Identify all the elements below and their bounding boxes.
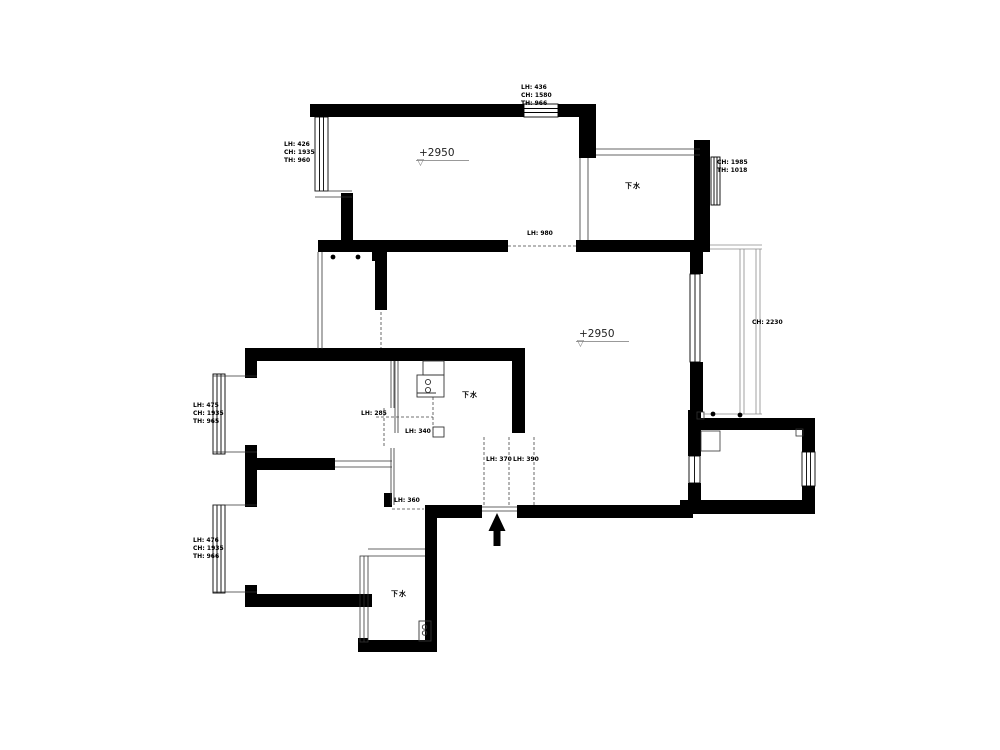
dashed-openings [376,246,576,509]
drain-label-kitchen: 下水 [462,390,478,400]
wall [245,458,335,470]
floor-plan-drawing [0,0,1000,750]
spec-line: CH: 1935 [193,410,224,418]
window-hall-right [690,274,700,362]
window-top-left [315,117,328,191]
level-triangle-icon: ▽ [417,159,424,168]
dim-label-door-e: LH: 360 [394,497,420,504]
wall [245,594,372,607]
wall [512,353,525,433]
spec-line: LH: 426 [284,141,315,149]
drain-label-bottom-room: 下水 [391,589,407,599]
wall [576,240,710,252]
walls [245,104,815,652]
wall [362,640,437,652]
wall [318,240,508,252]
level-marker-hall: +2950 ▽ [576,328,629,342]
spec-line: CH: 1935 [193,545,224,553]
wall [558,104,596,117]
wall [680,500,815,514]
spec-line: LH: 475 [193,402,224,410]
plan-canvas: LH: 436 CH: 1580 TH: 966 LH: 426 CH: 193… [0,0,1000,750]
wall [375,252,387,310]
window-right-room-west [689,456,700,483]
level-marker-living: +2950 ▽ [416,147,469,161]
dim-label-opening-top: LH: 980 [527,230,553,237]
door-stop-marker [796,429,803,436]
spec-line: TH: 966 [521,100,552,108]
wall [802,418,815,452]
wall [694,140,710,252]
wall [700,418,812,430]
spec-line: CH: 1985 [717,159,748,167]
wall [245,445,257,507]
dim-label-door-a: LH: 285 [361,410,387,417]
wall [310,104,524,117]
entry-arrow [489,513,506,546]
window-spec-top-right: CH: 1985 TH: 1018 [717,159,748,175]
spec-line: CH: 1935 [284,149,315,157]
corridor-lines [703,245,762,414]
kitchen-counter [417,361,444,437]
window-right-room-east [802,452,815,486]
dim-label-door-b: LH: 340 [405,428,431,435]
wall [358,638,368,652]
dim-label-door-d: LH: 390 [513,456,539,463]
dim-label-door-c: LH: 370 [486,456,512,463]
dim-label-right-corridor: CH: 2230 [752,319,783,326]
wall [690,362,703,412]
wall [690,252,703,274]
wall [517,505,693,518]
spec-line: TH: 965 [193,418,224,426]
wall [437,505,482,518]
spec-line: TH: 966 [193,553,224,561]
window-spec-mid-left: LH: 475 CH: 1935 TH: 965 [193,402,224,426]
spec-line: CH: 1580 [521,92,552,100]
spec-line: TH: 960 [284,157,315,165]
wall [579,117,596,158]
door-leaf [701,431,720,451]
spec-line: LH: 476 [193,537,224,545]
spec-line: TH: 1018 [717,167,748,175]
wall [245,361,257,378]
spec-line: LH: 436 [521,84,552,92]
wall [341,193,353,240]
window-spec-bottom-left: LH: 476 CH: 1935 TH: 966 [193,537,224,561]
drain-label-balcony: 下水 [625,181,641,191]
window-spec-top-center: LH: 436 CH: 1580 TH: 966 [521,84,552,108]
wall [245,348,525,361]
point-markers [331,255,743,418]
window-spec-top-left: LH: 426 CH: 1935 TH: 960 [284,141,315,165]
thin-walls [213,149,803,642]
level-triangle-icon: ▽ [577,340,584,349]
wall [688,410,701,456]
